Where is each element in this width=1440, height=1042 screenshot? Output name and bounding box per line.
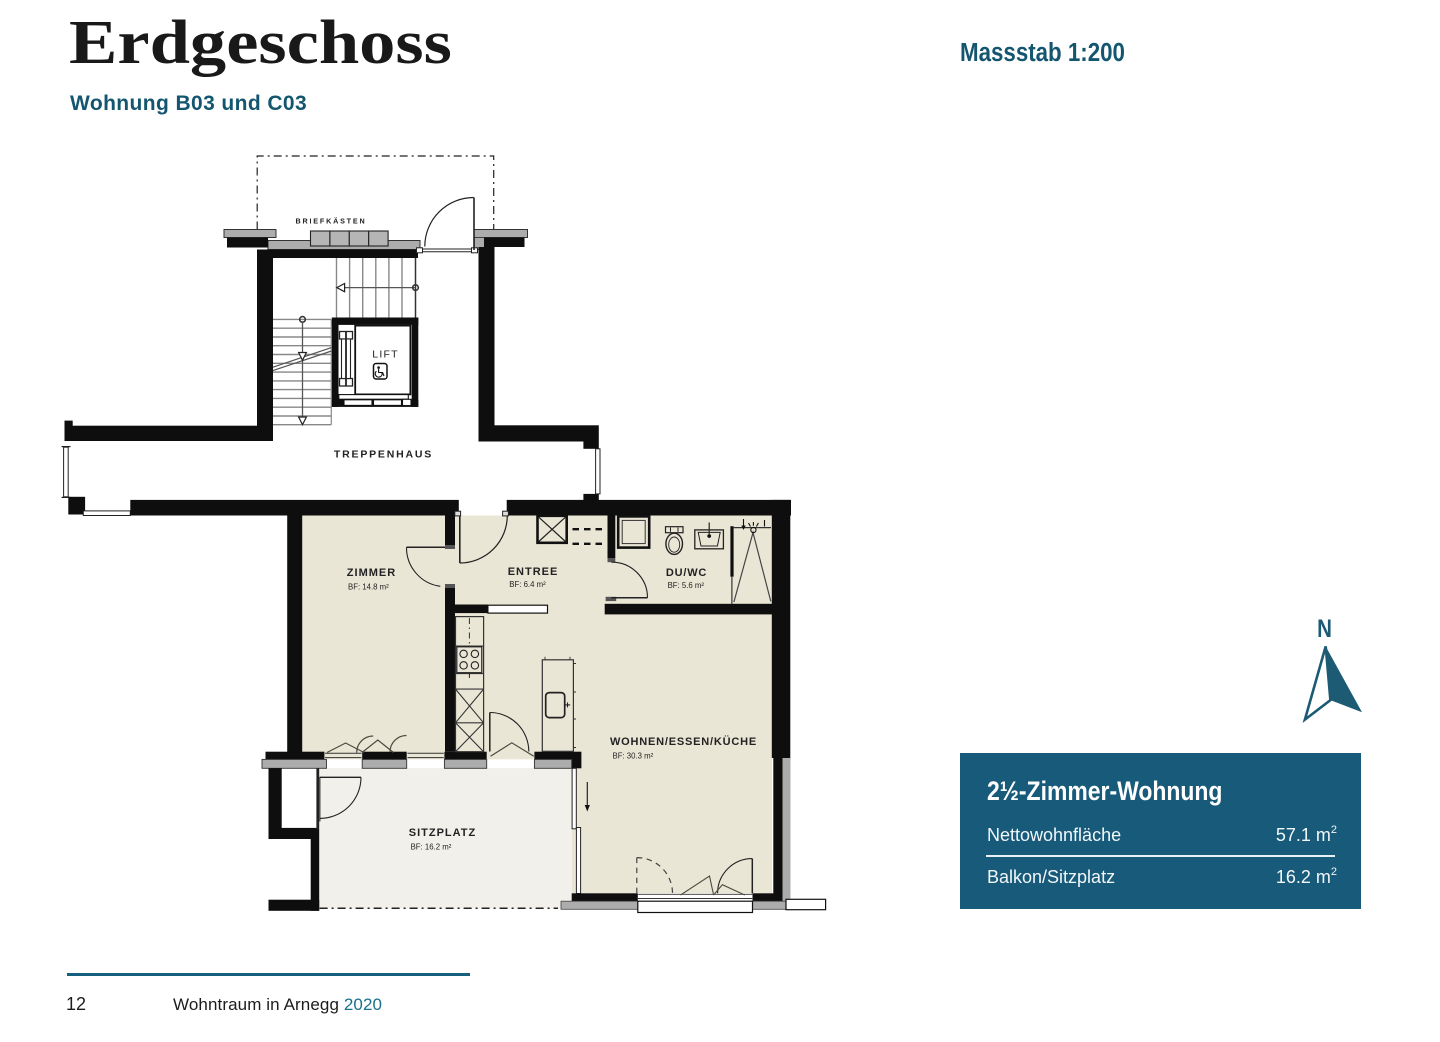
- svg-text:BRIEFKÄSTEN: BRIEFKÄSTEN: [296, 217, 367, 226]
- svg-text:TREPPENHAUS: TREPPENHAUS: [334, 449, 433, 461]
- svg-text:BF: 16.2 m²: BF: 16.2 m²: [411, 843, 452, 852]
- svg-text:BF: 30.3 m²: BF: 30.3 m²: [613, 752, 654, 761]
- svg-text:ENTREE: ENTREE: [508, 566, 559, 578]
- svg-text:BF: 5.6 m²: BF: 5.6 m²: [668, 581, 705, 590]
- svg-text:BF: 14.8 m²: BF: 14.8 m²: [348, 583, 389, 592]
- svg-text:LIFT: LIFT: [372, 349, 398, 361]
- svg-text:WOHNEN/ESSEN/KÜCHE: WOHNEN/ESSEN/KÜCHE: [610, 735, 757, 748]
- svg-text:DU/WC: DU/WC: [666, 567, 707, 579]
- svg-text:SITZPLATZ: SITZPLATZ: [409, 827, 476, 839]
- svg-text:N: N: [1317, 614, 1332, 642]
- svg-text:ZIMMER: ZIMMER: [347, 567, 396, 579]
- svg-text:BF: 6.4 m²: BF: 6.4 m²: [509, 580, 546, 589]
